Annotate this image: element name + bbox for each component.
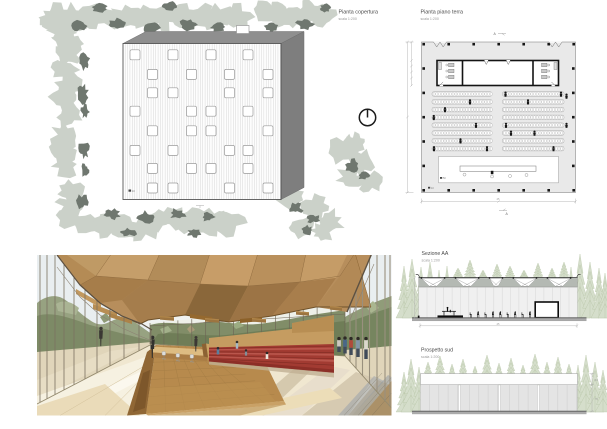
svg-text:Pianta copertura: Pianta copertura [339,10,379,16]
svg-text:Sezione AA: Sezione AA [422,251,449,257]
svg-text:scala 1:200: scala 1:200 [422,259,440,263]
svg-text:Pianta piano terra: Pianta piano terra [421,10,464,16]
svg-text:scala 1:200: scala 1:200 [421,17,439,21]
svg-text:Prospetto sud: Prospetto sud [421,348,453,354]
svg-text:scala 1:200: scala 1:200 [339,17,357,21]
svg-text:scala 1:200: scala 1:200 [421,355,439,359]
